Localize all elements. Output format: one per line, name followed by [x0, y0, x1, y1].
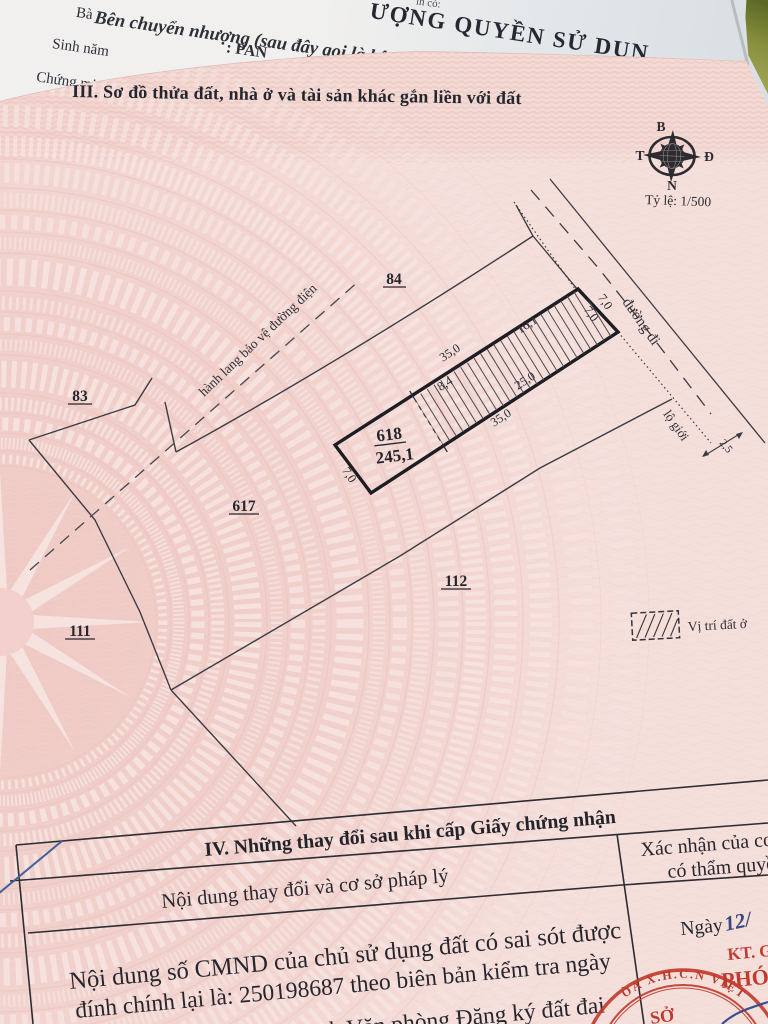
svg-text:617: 617: [232, 498, 256, 515]
svg-text:Tỷ lệ: 1/500: Tỷ lệ: 1/500: [645, 192, 712, 209]
svg-text:B: B: [656, 119, 665, 134]
svg-text:84: 84: [386, 271, 402, 288]
svg-text:618: 618: [375, 424, 403, 446]
svg-text:112: 112: [445, 573, 468, 590]
svg-text:Ngày: Ngày: [680, 915, 724, 940]
svg-text:Vị trí đất ở: Vị trí đất ở: [687, 616, 748, 634]
svg-text:Đ: Đ: [704, 149, 714, 164]
svg-text:111: 111: [69, 623, 91, 640]
svg-text:SỞ: SỞ: [649, 1004, 677, 1024]
svg-text:N: N: [667, 178, 677, 193]
svg-text:83: 83: [72, 388, 88, 405]
svg-text:KT. G: KT. G: [727, 941, 768, 964]
svg-text:T: T: [635, 148, 644, 163]
